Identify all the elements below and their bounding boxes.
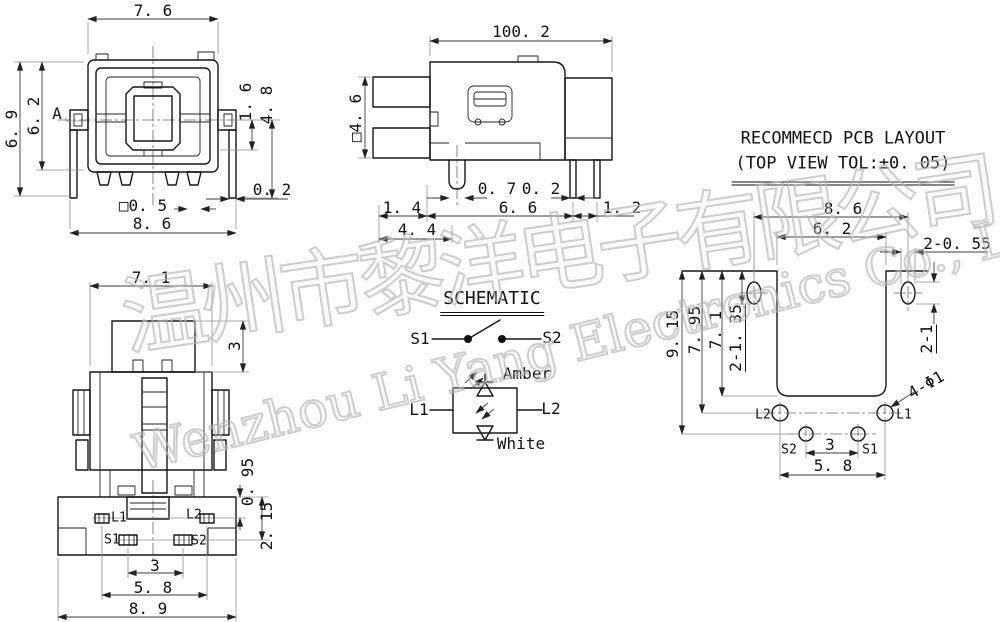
schematic-title: SCHEMATIC <box>440 288 544 316</box>
side-view-dim-overall: 100. 2 <box>492 24 550 40</box>
pcb-hole-label-l2: L2 <box>755 409 771 422</box>
pcb-dim-l-pitch: 5. 8 <box>814 458 853 474</box>
front-view-dim-width: 7. 1 <box>132 270 171 286</box>
front-view-dim-led-row: 0. 95 <box>240 458 256 506</box>
pcb-hole-label-l1: L1 <box>896 409 912 422</box>
switch-contact-dot <box>498 335 506 343</box>
switch-contact-dot <box>464 335 472 343</box>
front-view-pin-label-s2: S2 <box>191 535 207 548</box>
pcb-dim-slot-length: 2-1. 35 <box>728 304 746 371</box>
side-view-dim-pin-width: 0. 7 <box>478 181 517 197</box>
pcb-hole-label-s2: S2 <box>781 444 797 457</box>
schematic-label-s2: S2 <box>542 330 561 346</box>
pcb-dim-s-pitch: 3 <box>825 437 835 453</box>
view-front <box>58 282 270 621</box>
front-view-dim-overall-width: 8. 9 <box>129 601 168 617</box>
pcb-layout-title-line1: RECOMMECD PCB LAYOUT <box>736 127 951 152</box>
schematic-label-l1: L1 <box>409 402 428 418</box>
side-view-dim-leg-width: 0. 2 <box>522 181 561 197</box>
top-view-dim-width-bottom: 8. 6 <box>133 216 172 232</box>
side-view-dim-depth: 4. 4 <box>398 222 437 238</box>
front-view-pin-label-s1: S1 <box>104 534 120 547</box>
front-view-dim-switch-row: 2. 15 <box>259 502 275 550</box>
side-view-dim-left: 1. 4 <box>383 200 422 216</box>
top-view-dim-pin-offset: 0. 2 <box>253 182 292 198</box>
pcb-hole-label-s1: S1 <box>862 444 878 457</box>
schematic-label-l2: L2 <box>541 401 560 417</box>
pcb-dim-height-total: 9. 15 <box>665 310 681 358</box>
front-view-pin-label-l1: L1 <box>111 512 127 525</box>
top-view-dim-pin-square: □0. 5 <box>119 198 167 214</box>
pcb-dim-slot-width: 2-0. 55 <box>923 236 990 252</box>
top-view-dim-right-lower: 4. 8 <box>259 86 275 125</box>
front-view-dim-s-pitch: 3 <box>150 558 160 574</box>
side-view-dim-right: 1. 2 <box>603 200 642 216</box>
side-view-dim-span: 6. 6 <box>499 200 538 216</box>
pcb-dim-slot-right: 2-1 <box>919 325 937 354</box>
pcb-layout-title-line2: (TOP VIEW TOL:±0. 05) <box>736 152 951 177</box>
drawing-sheet: 7. 6 6. 9 6. 2 A 1. 6 4. 8 0. 2 □0. 5 8.… <box>0 0 1000 622</box>
top-view-dim-right-upper: 1. 6 <box>238 83 254 122</box>
top-view-dim-height-inner: 6. 2 <box>26 97 42 136</box>
top-view-section-label: A <box>52 106 62 122</box>
side-view-dim-shaft: □4. 6 <box>348 94 364 142</box>
pcb-dim-slot-pitch: 8. 6 <box>824 201 863 217</box>
front-view-dim-l-pitch: 5. 8 <box>134 580 173 596</box>
schematic-label-amber: Amber <box>503 366 551 382</box>
schematic-label-white: White <box>497 436 545 452</box>
pcb-dim-body-width: 6. 2 <box>813 221 852 237</box>
led-amber-symbol <box>477 374 493 396</box>
pcb-dim-height-body: 7. 1 <box>708 311 724 350</box>
front-view-dim-button-height: 3 <box>227 341 243 351</box>
pcb-dim-height-led: 7. 95 <box>687 306 703 354</box>
front-view-pin-label-l2: L2 <box>186 509 202 522</box>
top-view-dim-height-outer: 6. 9 <box>4 110 20 149</box>
schematic-label-s1: S1 <box>410 331 429 347</box>
pcb-layout-title: RECOMMECD PCB LAYOUT (TOP VIEW TOL:±0. 0… <box>732 127 955 186</box>
top-view-dim-width-top: 7. 6 <box>134 3 173 19</box>
